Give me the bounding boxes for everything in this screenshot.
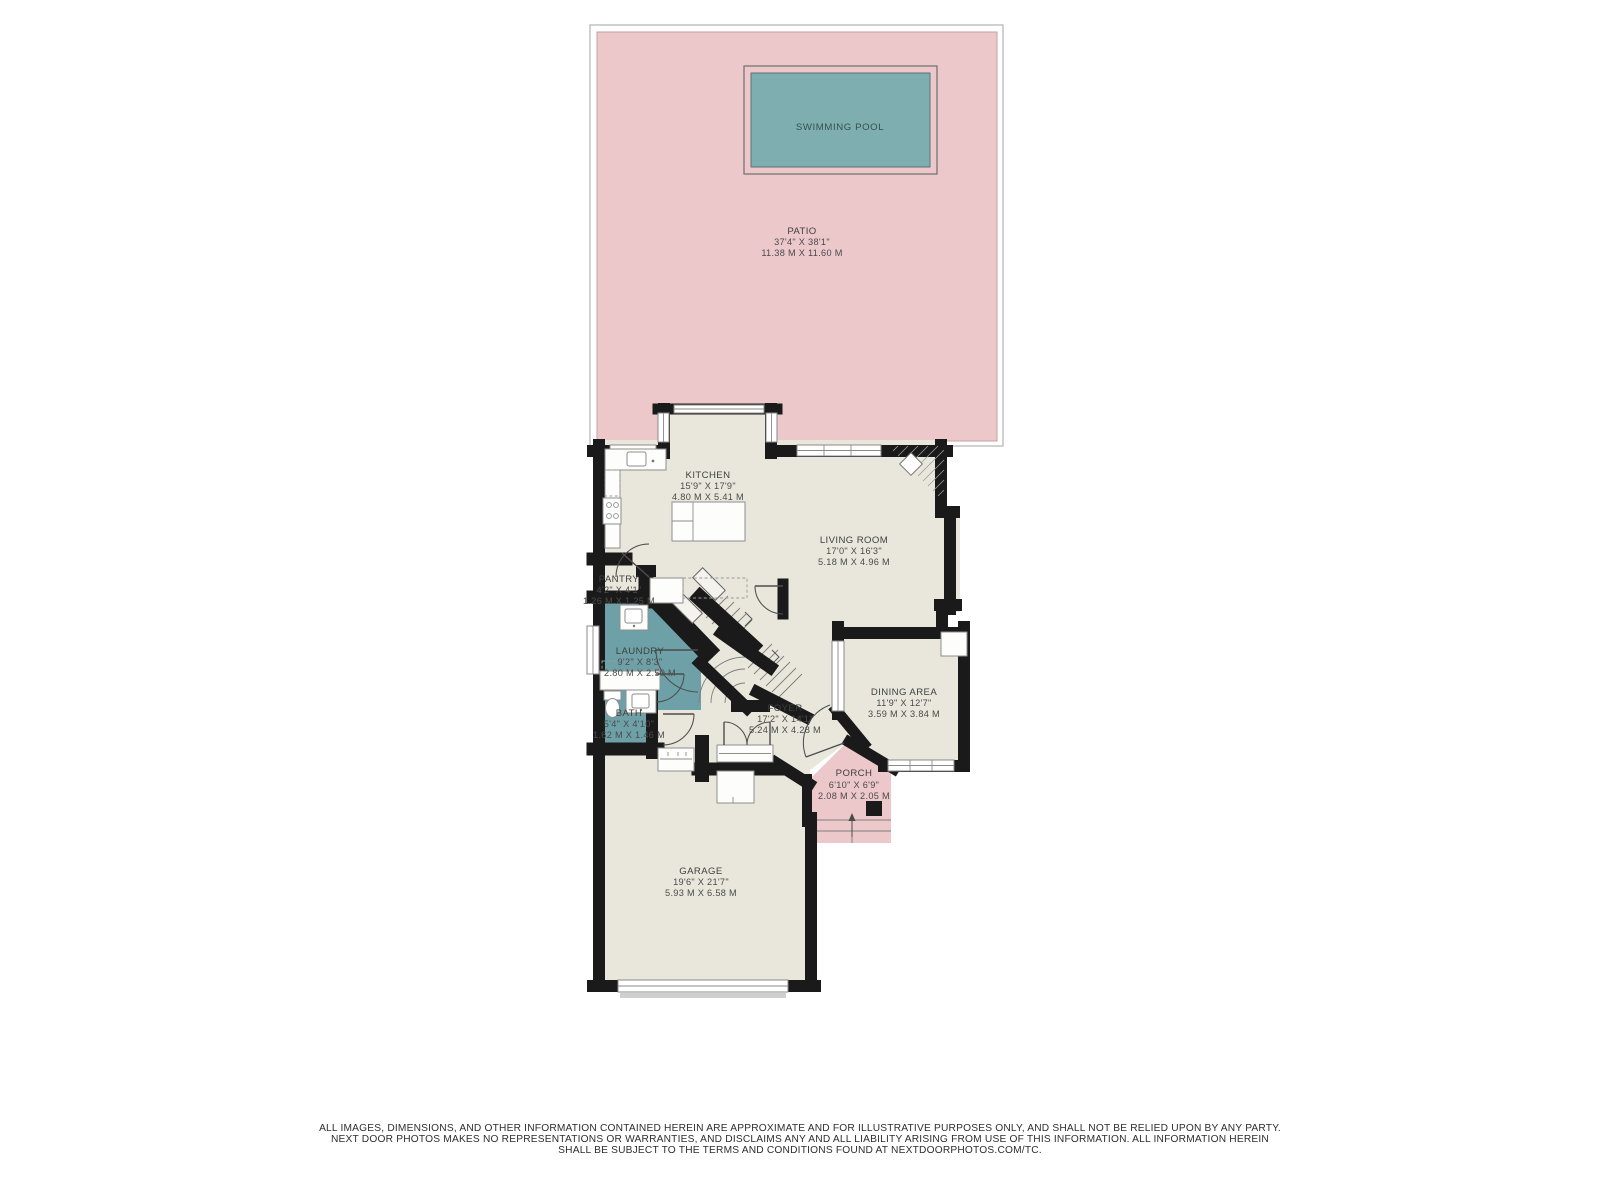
garage-dim-metric: 5.93 M X 6.58 M	[665, 888, 737, 898]
foyer-dim-imperial: 17'2" X 14'1"	[757, 714, 813, 724]
pantry-dim-metric: 1.26 M X 1.25 M	[583, 596, 655, 606]
floor-plan-canvas: SWIMMING POOL PATIO 37'4" X 38'1" 11.38 …	[0, 0, 1600, 1200]
dining-area-label: DINING AREA	[871, 687, 937, 698]
living-room-dim-metric: 5.18 M X 4.96 M	[818, 557, 890, 567]
patio-label: PATIO	[787, 226, 816, 237]
living-room-label: LIVING ROOM	[820, 535, 888, 546]
entry-landing	[717, 771, 754, 803]
floor-plan-page: SWIMMING POOL PATIO 37'4" X 38'1" 11.38 …	[0, 0, 1600, 1200]
disclaimer-line-2: NEXT DOOR PHOTOS MAKES NO REPRESENTATION…	[331, 1134, 1269, 1145]
dining-windows-bottom	[888, 760, 954, 771]
porch-label: PORCH	[836, 768, 873, 779]
laundry-dim-imperial: 9'2" X 8'3"	[617, 657, 662, 667]
living-room-windows	[797, 445, 881, 456]
bath-dim-imperial: 5'4" X 4'10"	[604, 719, 654, 729]
kitchen-stove	[603, 498, 621, 524]
foyer-label: FOYER	[767, 703, 802, 714]
laundry-label: LAUNDRY	[616, 646, 665, 657]
swimming-pool	[744, 66, 937, 174]
patio-dim-imperial: 37'4" X 38'1"	[774, 237, 830, 247]
bath-label: BATH	[616, 708, 642, 719]
kitchen-label: KITCHEN	[686, 470, 731, 481]
pool-label: SWIMMING POOL	[796, 122, 884, 133]
disclaimer-line-3: SHALL BE SUBJECT TO THE TERMS AND CONDIT…	[558, 1145, 1042, 1156]
kitchen-island	[672, 502, 745, 541]
kitchen-dim-metric: 4.80 M X 5.41 M	[672, 492, 744, 502]
nook-window-right	[766, 413, 777, 442]
dining-window-left	[832, 641, 844, 711]
laundry-window	[587, 626, 599, 674]
disclaimer-line-1: ALL IMAGES, DIMENSIONS, AND OTHER INFORM…	[319, 1123, 1281, 1134]
disclaimer: ALL IMAGES, DIMENSIONS, AND OTHER INFORM…	[319, 1123, 1281, 1156]
garage-dim-imperial: 19'6" X 21'7"	[673, 877, 729, 887]
dining-area-dim-imperial: 11'9" X 12'7"	[876, 698, 931, 708]
patio-dim-metric: 11.38 M X 11.60 M	[761, 248, 842, 258]
dining-cabinet	[941, 632, 967, 656]
porch-dim-imperial: 6'10" X 6'9"	[829, 780, 879, 790]
front-stoop	[717, 745, 773, 762]
nook-window-left	[658, 413, 669, 442]
pantry-label: PANTRY	[599, 574, 640, 585]
nook-slider-door	[674, 405, 764, 413]
kitchen-dim-imperial: 15'9" X 17'9"	[680, 481, 736, 491]
dining-area-dim-metric: 3.59 M X 3.84 M	[868, 709, 940, 719]
foyer-dim-metric: 5.24 M X 4.28 M	[749, 725, 821, 735]
laundry-dim-metric: 2.80 M X 2.50 M	[604, 668, 676, 678]
porch-pillar	[866, 801, 882, 816]
living-room-dim-imperial: 17'0" X 16'3"	[826, 546, 882, 556]
garage-door	[618, 980, 788, 998]
porch-dim-metric: 2.08 M X 2.05 M	[818, 791, 890, 801]
pantry-dim-imperial: 4'2" X 4'1"	[596, 585, 641, 595]
foyer-closet	[658, 748, 694, 771]
garage-label: GARAGE	[679, 866, 722, 877]
bath-dim-metric: 1.62 M X 1.46 M	[593, 730, 665, 740]
